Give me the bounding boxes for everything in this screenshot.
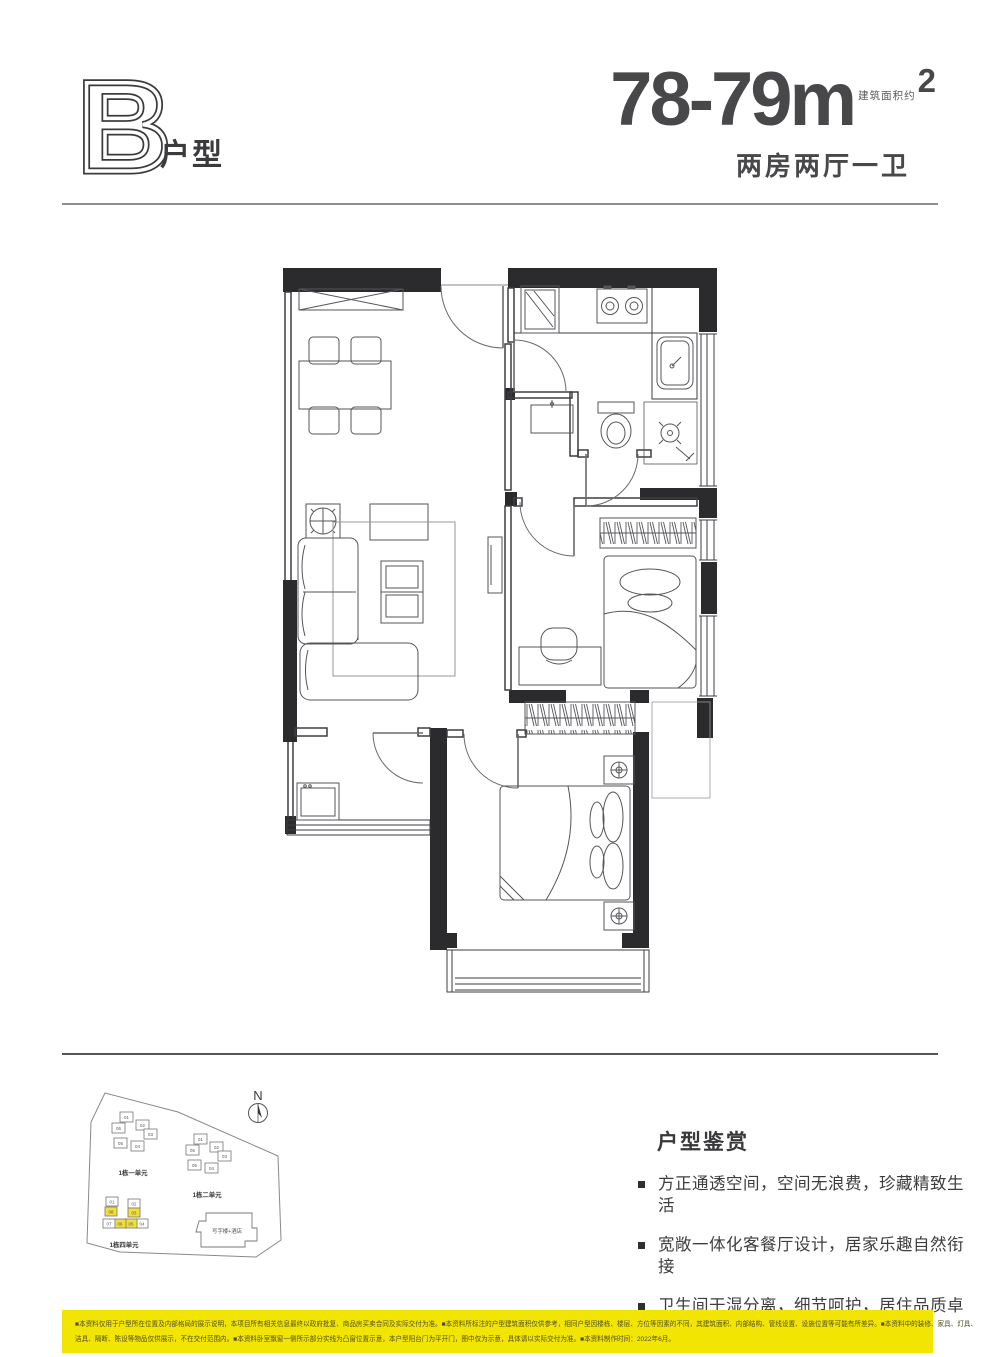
unit-label: 04: [135, 1144, 140, 1149]
hotel-label: 写字楼+酒店: [212, 1227, 243, 1235]
unit-label: 06: [116, 1126, 121, 1131]
unit-label: 05: [129, 1221, 134, 1226]
washing-machine: [297, 783, 339, 820]
building-cluster: 01020304050607081栋四单元: [103, 1197, 148, 1249]
unit-label: 03: [132, 1210, 137, 1215]
bedroom1-wardrobe: [600, 518, 696, 548]
unit-label: 06: [190, 1148, 195, 1153]
unit-label: 02: [140, 1123, 145, 1128]
bullet-square-icon: [638, 1242, 645, 1249]
appreciation-title: 户型鉴赏: [657, 1126, 968, 1156]
unit-label: 01: [198, 1137, 203, 1142]
unit-label: 02: [214, 1145, 219, 1150]
unit-label: 01: [110, 1199, 115, 1204]
unit-label: 02: [132, 1201, 137, 1206]
bullet-row: 方正通透空间，空间无浪费，珍藏精致生活: [638, 1173, 968, 1217]
bullet-square-icon: [638, 1181, 645, 1188]
entry-door: [441, 286, 503, 348]
cluster-label: 1栋一单元: [118, 1168, 148, 1177]
north-indicator: N: [249, 1088, 268, 1123]
stove: [597, 286, 647, 323]
bullet-text: 方正通透空间，空间无浪费，珍藏精致生活: [658, 1173, 968, 1217]
disclaimer-line: 洁具、隔断、陈设等物品仅供展示，不在交付范围内。■本资料卧室飘窗一侧所示部分实线…: [75, 1332, 922, 1347]
north-label: N: [253, 1088, 262, 1103]
unit-label: 01: [124, 1115, 129, 1120]
unit-label: 04: [140, 1221, 145, 1226]
unit-label: 06: [118, 1221, 123, 1226]
building-cluster: 0102030405061栋一单元: [112, 1112, 157, 1177]
unit-label: 05: [118, 1141, 123, 1146]
coffee-table: [381, 561, 423, 623]
disclaimer-line: ■本资料仅用于户型所在位置及内部格局的展示说明，本项目所有相关信息最终以政府批复…: [75, 1317, 922, 1332]
unit-label: 04: [209, 1166, 214, 1171]
shoe-cabinet: [299, 289, 403, 310]
building-cluster: 0102030405061栋二单元: [186, 1134, 231, 1199]
kitchen-window: [699, 334, 717, 486]
plant-table: [306, 504, 340, 538]
area-superscript: 2: [918, 64, 936, 97]
nightstand-bottom: [604, 902, 634, 930]
shower: [644, 402, 697, 464]
washbasin: [531, 400, 573, 433]
bedroom2-wardrobe: [525, 702, 635, 734]
cluster-label: 1栋四单元: [109, 1240, 139, 1249]
kitchen-sink: [657, 337, 693, 389]
bullet-text: 宽敞一体化客餐厅设计，居家乐趣自然衔接: [658, 1234, 968, 1278]
hotel-building: 写字楼+酒店: [196, 1213, 257, 1247]
kitchen-door: [514, 340, 566, 392]
toilet: [598, 402, 634, 448]
balcony-window: [287, 820, 430, 835]
divider-top: [62, 203, 938, 205]
unit-label: 03: [148, 1132, 153, 1137]
bedroom2-bay-window: [447, 950, 649, 992]
page: B B 户型 78-79m 建筑面积约 2 两房两厅一卫: [0, 0, 1000, 1357]
unit-label: 05: [192, 1163, 197, 1168]
bullet-row: 宽敞一体化客餐厅设计，居家乐趣自然衔接: [638, 1234, 968, 1278]
unit-label: 07: [107, 1221, 112, 1226]
balcony-door: [373, 733, 423, 783]
bedroom1-bed: [604, 556, 696, 688]
unit-label: 03: [222, 1154, 227, 1159]
desk: [519, 628, 601, 685]
cluster-label: 1栋二单元: [192, 1190, 222, 1199]
bedroom2-door: [464, 734, 518, 788]
unit-label: 08: [109, 1209, 114, 1214]
rug: [333, 522, 455, 676]
bedroom1-window-upper: [699, 520, 717, 560]
bedroom1-window-lower: [699, 616, 717, 696]
dining-set: [299, 337, 391, 434]
area-value: 78-79m: [610, 62, 854, 138]
nightstand-top: [604, 756, 634, 784]
bullet-square-icon: [638, 1303, 645, 1310]
rooms-description: 两房两厅一卫: [736, 146, 910, 183]
area-block: 78-79m 建筑面积约 2 两房两厅一卫: [610, 62, 936, 183]
divider-bottom: [62, 1053, 938, 1055]
type-label: 户型: [160, 130, 224, 174]
floor-plan: [266, 256, 732, 1012]
fridge: [521, 286, 559, 333]
bedroom2-bed: [500, 786, 630, 900]
bedroom1-door: [520, 502, 574, 556]
area-note: 建筑面积约: [858, 88, 916, 103]
disclaimer-bar: ■本资料仅用于户型所在位置及内部格局的展示说明，本项目所有相关信息最终以政府批复…: [62, 1310, 933, 1353]
tv: [488, 537, 502, 593]
type-letter-inner: B: [78, 70, 170, 182]
site-plan: N 0102030405061栋一单元0102030405061栋二单元0102…: [58, 1062, 358, 1280]
area-row: 78-79m 建筑面积约 2: [610, 62, 936, 138]
